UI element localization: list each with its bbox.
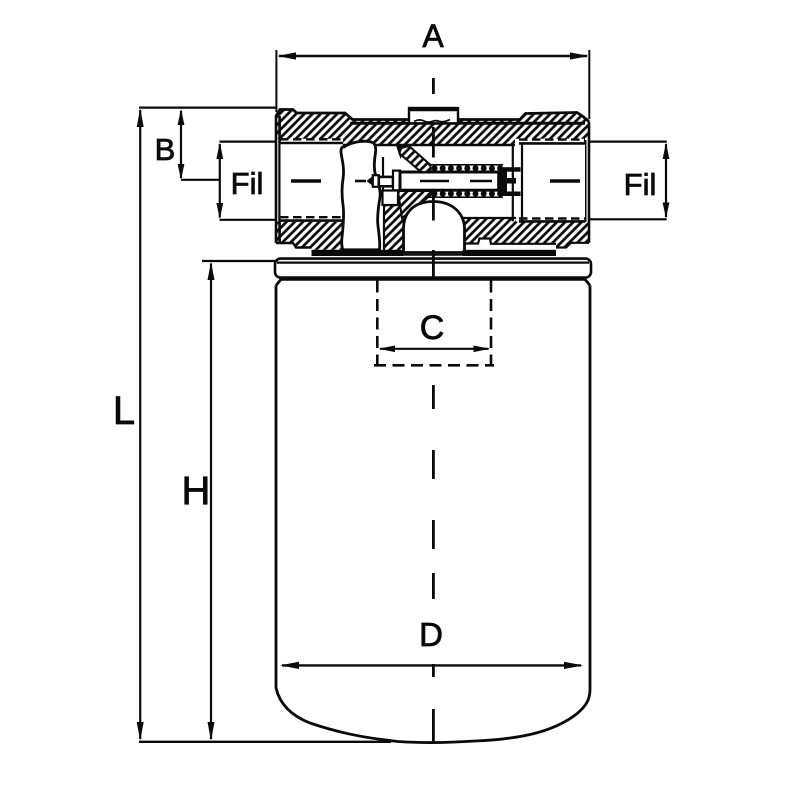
svg-text:L: L xyxy=(113,389,135,433)
svg-text:A: A xyxy=(422,18,444,54)
svg-text:D: D xyxy=(419,616,443,653)
svg-text:C: C xyxy=(420,309,445,347)
svg-text:B: B xyxy=(155,132,176,167)
svg-text:Fil: Fil xyxy=(624,167,657,202)
svg-text:Fil: Fil xyxy=(231,166,264,201)
svg-text:H: H xyxy=(182,469,211,513)
